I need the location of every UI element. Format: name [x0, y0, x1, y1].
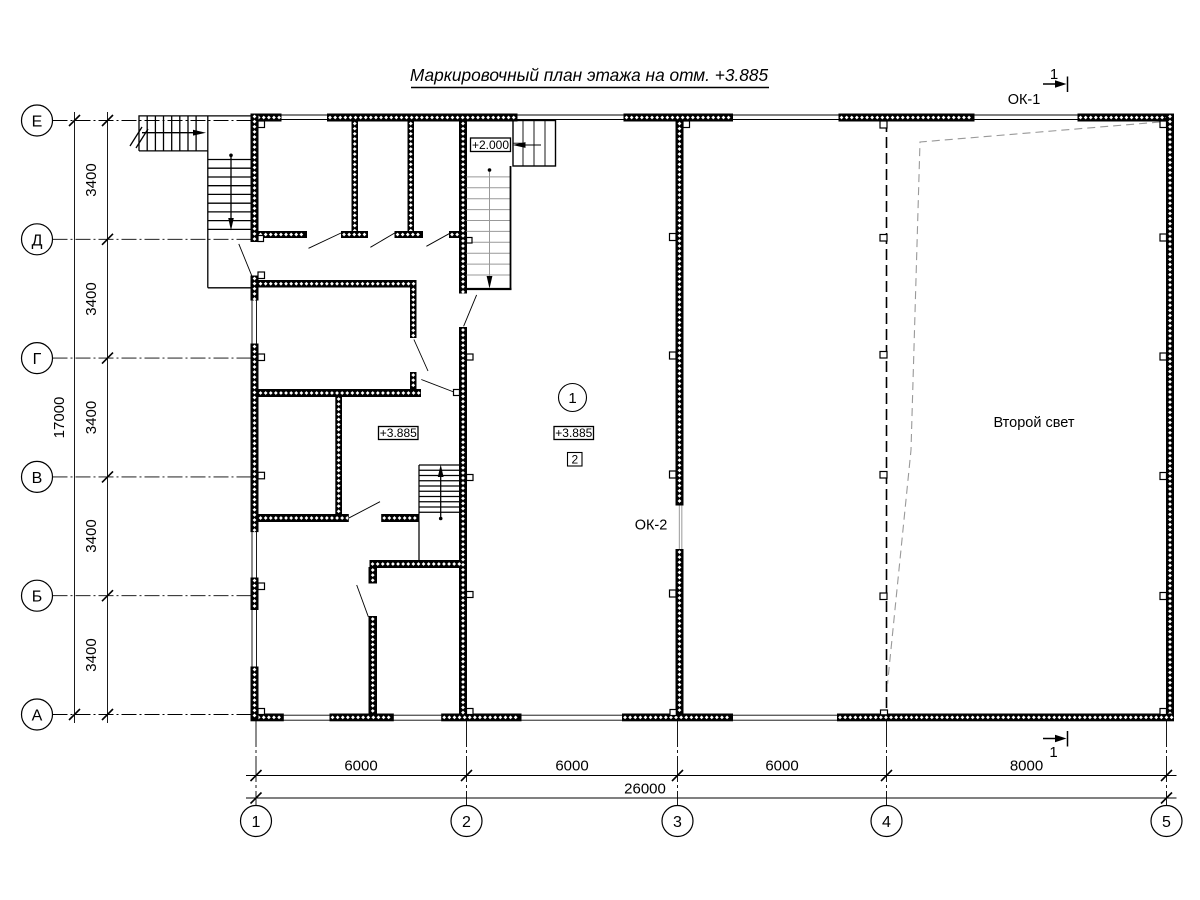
svg-text:6000: 6000: [344, 758, 377, 775]
svg-text:3400: 3400: [83, 401, 100, 434]
svg-text:Второй свет: Второй свет: [993, 415, 1074, 431]
svg-text:+3.885: +3.885: [380, 426, 417, 440]
svg-text:26000: 26000: [624, 781, 666, 798]
svg-text:Г: Г: [33, 351, 42, 368]
svg-text:Б: Б: [32, 589, 43, 606]
svg-text:2: 2: [571, 452, 578, 466]
svg-text:17000: 17000: [51, 397, 68, 439]
svg-text:ОК-2: ОК-2: [635, 518, 668, 534]
svg-text:А: А: [32, 708, 43, 725]
svg-text:1: 1: [1050, 66, 1058, 83]
svg-text:1: 1: [252, 814, 261, 831]
svg-text:3400: 3400: [83, 638, 100, 671]
svg-text:3400: 3400: [83, 282, 100, 315]
svg-text:3400: 3400: [83, 163, 100, 196]
svg-text:В: В: [32, 470, 43, 487]
svg-text:6000: 6000: [555, 758, 588, 775]
svg-text:+3.885: +3.885: [555, 426, 592, 440]
svg-text:Д: Д: [32, 232, 43, 249]
svg-text:Е: Е: [32, 114, 43, 131]
svg-text:3: 3: [673, 814, 682, 831]
svg-text:1: 1: [568, 390, 576, 407]
svg-text:1: 1: [1049, 744, 1057, 761]
svg-text:2: 2: [462, 814, 471, 831]
svg-text:5: 5: [1162, 814, 1171, 831]
svg-text:ОК-1: ОК-1: [1008, 92, 1041, 108]
svg-text:Маркировочный план этажа на от: Маркировочный план этажа на отм. +3.885: [410, 65, 769, 85]
svg-text:+2.000: +2.000: [472, 138, 509, 152]
svg-text:3400: 3400: [83, 519, 100, 552]
svg-text:8000: 8000: [1010, 758, 1043, 775]
svg-text:4: 4: [882, 814, 891, 831]
svg-text:6000: 6000: [765, 758, 798, 775]
